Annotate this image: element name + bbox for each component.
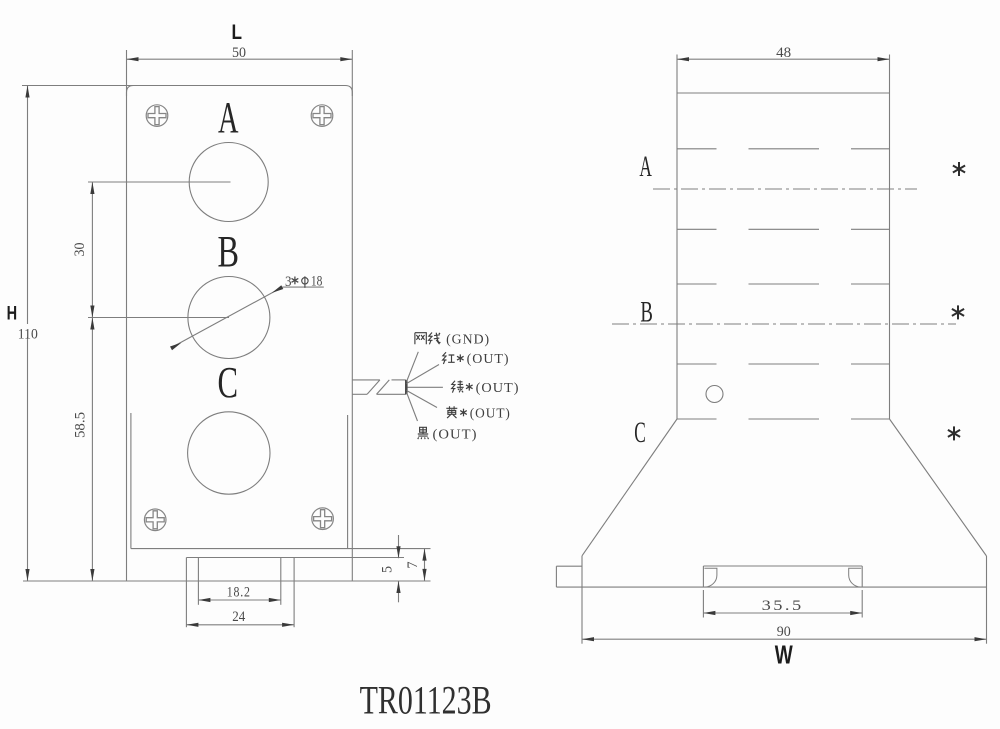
svg-text:30: 30 [72, 243, 88, 257]
svg-text:90: 90 [777, 624, 791, 640]
svg-text:(OUT): (OUT) [433, 427, 478, 442]
svg-text:(OUT): (OUT) [467, 352, 510, 367]
svg-text:7: 7 [405, 561, 421, 568]
svg-text:18.2: 18.2 [227, 585, 251, 601]
svg-text:110: 110 [18, 326, 38, 342]
svg-text:L: L [231, 21, 242, 44]
svg-text:35.5: 35.5 [762, 598, 804, 614]
svg-text:H: H [7, 304, 18, 325]
svg-text:(GND): (GND) [446, 333, 490, 348]
svg-text:18: 18 [311, 273, 323, 289]
svg-text:A: A [218, 93, 239, 142]
svg-text:C: C [634, 416, 646, 449]
svg-text:B: B [217, 227, 239, 276]
svg-text:58.5: 58.5 [73, 412, 89, 438]
svg-text:(OUT): (OUT) [476, 381, 520, 396]
svg-text:3: 3 [285, 274, 292, 290]
svg-text:B: B [640, 296, 653, 329]
svg-text:5: 5 [380, 566, 396, 573]
svg-text:50: 50 [232, 45, 246, 61]
svg-text:C: C [218, 358, 239, 407]
svg-text:48: 48 [776, 45, 791, 61]
svg-text:A: A [639, 150, 652, 183]
svg-text:(OUT): (OUT) [470, 407, 511, 422]
svg-text:W: W [775, 640, 793, 670]
svg-text:24: 24 [232, 609, 245, 625]
svg-text:TR01123B: TR01123B [360, 678, 492, 723]
